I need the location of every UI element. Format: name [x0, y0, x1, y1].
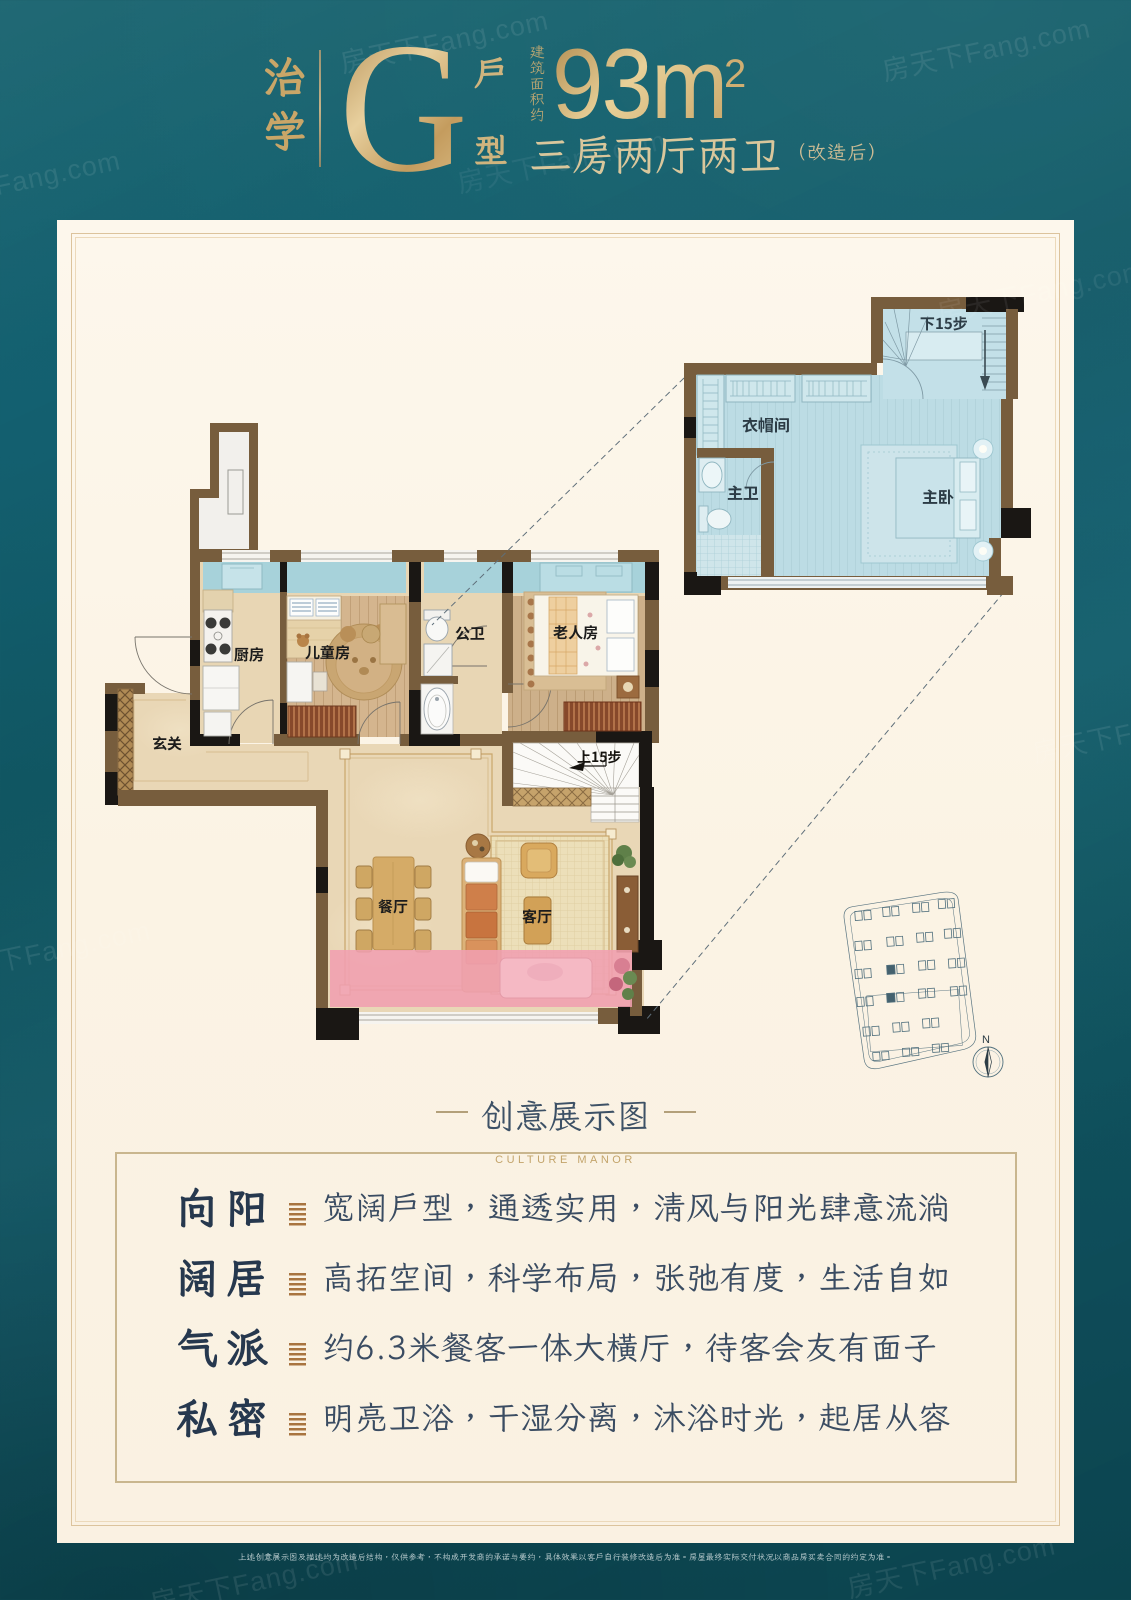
svg-text:儿童房: 儿童房	[305, 642, 350, 663]
svg-text:上15步: 上15步	[577, 747, 622, 767]
svg-text:老人房: 老人房	[553, 622, 598, 643]
svg-text:衣帽间: 衣帽间	[742, 412, 790, 436]
svg-text:N: N	[982, 1034, 990, 1046]
svg-text:餐厅: 餐厅	[378, 896, 408, 917]
svg-text:客厅: 客厅	[522, 906, 552, 927]
svg-text:公卫: 公卫	[455, 623, 485, 644]
svg-text:玄关: 玄关	[152, 733, 182, 754]
svg-text:厨房: 厨房	[234, 644, 264, 665]
svg-text:主卧: 主卧	[922, 484, 954, 508]
svg-text:主卫: 主卫	[727, 480, 759, 504]
